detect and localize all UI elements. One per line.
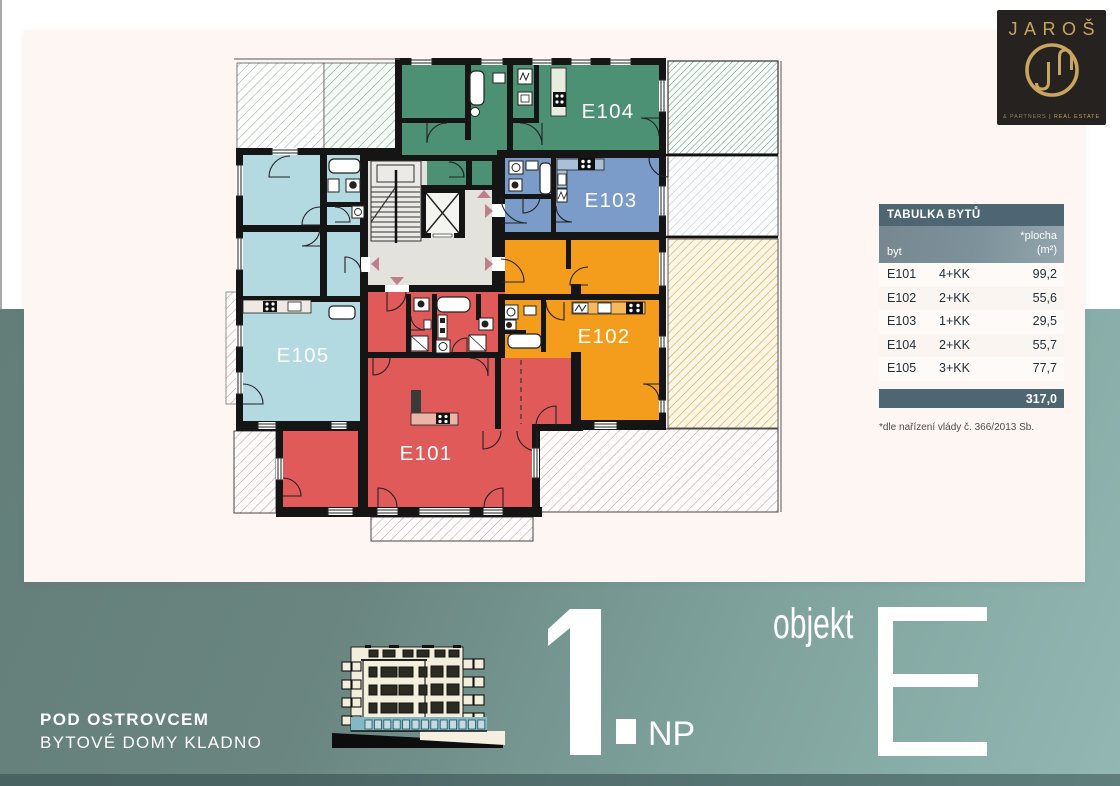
svg-text:E104: E104 [582,100,635,123]
svg-text:E105: E105 [277,344,330,367]
svg-text:E103: E103 [585,189,638,212]
svg-text:E101: E101 [400,442,453,465]
svg-text:E102: E102 [578,325,631,348]
